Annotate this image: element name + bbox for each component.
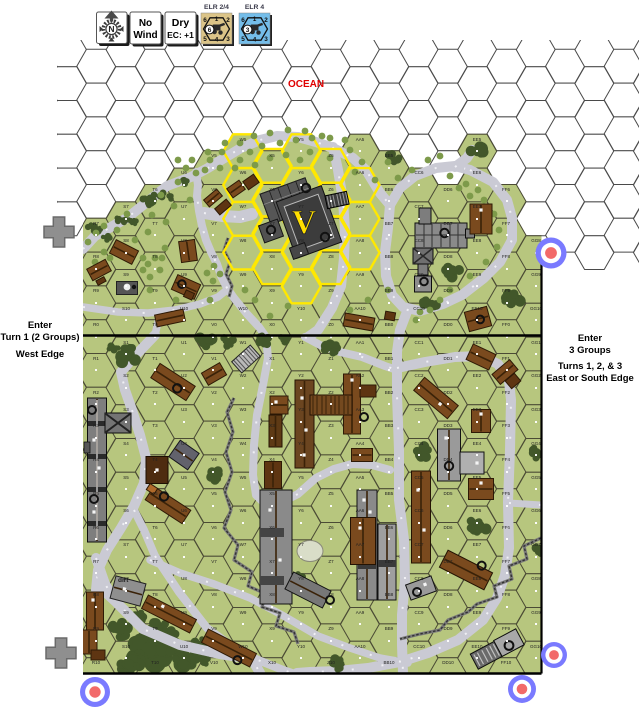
svg-text:U10: U10 [180, 644, 189, 649]
svg-text:CC7: CC7 [414, 204, 423, 209]
svg-text:R7: R7 [93, 221, 99, 226]
svg-text:S1: S1 [123, 340, 129, 345]
svg-text:OCEAN: OCEAN [288, 79, 324, 90]
svg-text:DD9: DD9 [443, 626, 452, 631]
svg-text:AA7: AA7 [356, 204, 365, 209]
svg-text:AA9: AA9 [356, 272, 365, 277]
svg-text:Z1: Z1 [328, 356, 334, 361]
svg-text:W5: W5 [240, 137, 247, 142]
svg-text:V5: V5 [211, 153, 217, 158]
svg-text:Y1: Y1 [298, 340, 304, 345]
svg-text:V1: V1 [211, 356, 217, 361]
svg-text:3: 3 [246, 27, 250, 34]
svg-text:DD6: DD6 [443, 187, 452, 192]
svg-text:BB8: BB8 [385, 254, 394, 259]
svg-text:Y5: Y5 [298, 475, 304, 480]
svg-text:S2: S2 [123, 373, 129, 378]
svg-text:V8: V8 [211, 592, 217, 597]
svg-text:AA10: AA10 [354, 644, 366, 649]
svg-text:EE6: EE6 [473, 508, 482, 513]
svg-text:T4: T4 [152, 457, 158, 462]
svg-text:EE10: EE10 [471, 644, 483, 649]
svg-text:X5: X5 [269, 491, 275, 496]
svg-text:EE2: EE2 [473, 373, 482, 378]
svg-text:FF7: FF7 [502, 221, 510, 226]
svg-text:U3: U3 [181, 407, 187, 412]
svg-text:GG6: GG6 [531, 508, 541, 513]
svg-text:W8: W8 [240, 576, 247, 581]
svg-text:V4: V4 [211, 457, 217, 462]
svg-text:DD7: DD7 [443, 559, 452, 564]
svg-text:T7: T7 [152, 221, 158, 226]
svg-text:T9: T9 [152, 626, 158, 631]
svg-text:R9: R9 [93, 288, 99, 293]
svg-text:W6: W6 [240, 508, 247, 513]
svg-text:West Edge: West Edge [16, 349, 64, 360]
svg-text:V6: V6 [211, 187, 217, 192]
svg-text:Z4: Z4 [328, 457, 334, 462]
svg-text:AA10: AA10 [354, 306, 366, 311]
svg-text:GG5: GG5 [531, 475, 541, 480]
svg-text:S5: S5 [123, 475, 129, 480]
svg-text:W3: W3 [240, 407, 247, 412]
svg-text:Enter: Enter [28, 320, 53, 331]
svg-text:R9: R9 [93, 626, 99, 631]
svg-text:U6: U6 [181, 508, 187, 513]
svg-text:X4: X4 [269, 457, 275, 462]
svg-text:R1: R1 [93, 356, 99, 361]
svg-text:FF9: FF9 [502, 626, 510, 631]
svg-text:W9: W9 [240, 610, 247, 615]
svg-text:FF4: FF4 [502, 457, 510, 462]
svg-text:S9: S9 [123, 610, 129, 615]
svg-text:V2: V2 [211, 390, 217, 395]
svg-text:BB9: BB9 [385, 288, 394, 293]
svg-text:S7: S7 [123, 542, 129, 547]
svg-text:T7: T7 [152, 559, 158, 564]
svg-text:Z8: Z8 [328, 592, 334, 597]
svg-text:Z6: Z6 [328, 525, 334, 530]
svg-text:X10: X10 [268, 660, 277, 665]
svg-text:X9: X9 [269, 288, 275, 293]
svg-text:EE5: EE5 [473, 137, 482, 142]
svg-text:R3: R3 [93, 423, 99, 428]
svg-text:Y4: Y4 [298, 441, 304, 446]
svg-text:5: 5 [241, 36, 245, 43]
svg-text:EE9: EE9 [473, 272, 482, 277]
svg-text:X8: X8 [269, 254, 275, 259]
svg-text:Y9: Y9 [298, 272, 304, 277]
svg-text:X2: X2 [269, 390, 275, 395]
svg-text:BB6: BB6 [385, 187, 394, 192]
svg-text:BB7: BB7 [385, 559, 394, 564]
svg-text:U7: U7 [181, 542, 187, 547]
svg-text:BB4: BB4 [385, 457, 394, 462]
svg-text:BB5: BB5 [385, 153, 394, 158]
svg-text:R2: R2 [93, 390, 99, 395]
svg-text:T1: T1 [152, 356, 158, 361]
svg-text:X8: X8 [269, 592, 275, 597]
svg-text:T5: T5 [152, 491, 158, 496]
svg-text:AA5: AA5 [356, 475, 365, 480]
svg-text:DD0: DD0 [443, 322, 452, 327]
svg-text:W8: W8 [240, 238, 247, 243]
svg-text:V9: V9 [211, 626, 217, 631]
svg-text:Y6: Y6 [298, 508, 304, 513]
svg-text:CC9: CC9 [414, 272, 423, 277]
svg-text:FF9: FF9 [502, 288, 510, 293]
svg-text:FF8: FF8 [502, 254, 510, 259]
svg-text:BB6: BB6 [385, 525, 394, 530]
svg-text:Y9: Y9 [298, 610, 304, 615]
svg-text:CC9: CC9 [414, 610, 423, 615]
svg-text:U1: U1 [181, 340, 187, 345]
svg-text:Z5: Z5 [328, 491, 334, 496]
svg-text:EE5: EE5 [473, 475, 482, 480]
svg-text:T9: T9 [152, 288, 158, 293]
svg-text:AA4: AA4 [356, 441, 365, 446]
svg-text:AA6: AA6 [356, 170, 365, 175]
svg-text:S3: S3 [123, 407, 129, 412]
svg-text:6: 6 [208, 27, 212, 34]
svg-text:BB10: BB10 [383, 660, 395, 665]
svg-text:FF10: FF10 [501, 660, 512, 665]
svg-text:Turn 1 (2 Groups): Turn 1 (2 Groups) [1, 332, 80, 343]
svg-text:3 Groups: 3 Groups [569, 345, 611, 356]
svg-text:CC8: CC8 [414, 576, 423, 581]
svg-text:X1: X1 [269, 356, 275, 361]
svg-text:Z7: Z7 [328, 559, 334, 564]
svg-text:BB8: BB8 [385, 592, 394, 597]
svg-text:5: 5 [203, 36, 207, 43]
svg-text:CC5: CC5 [414, 475, 423, 480]
svg-text:Z2: Z2 [328, 390, 334, 395]
svg-text:S10: S10 [122, 644, 131, 649]
svg-text:AA5: AA5 [356, 137, 365, 142]
svg-text:V8: V8 [211, 254, 217, 259]
svg-text:U5: U5 [181, 475, 187, 480]
svg-text:CC10: CC10 [413, 644, 425, 649]
svg-text:CC2: CC2 [414, 373, 423, 378]
svg-text:Z9: Z9 [328, 288, 334, 293]
svg-text:CC6: CC6 [414, 170, 423, 175]
svg-text:FF1: FF1 [502, 356, 510, 361]
svg-text:X0: X0 [269, 322, 275, 327]
svg-text:ELR 2/4: ELR 2/4 [204, 4, 229, 11]
svg-text:East or South Edge: East or South Edge [546, 373, 634, 384]
svg-text:T6: T6 [152, 525, 158, 530]
svg-text:DD8: DD8 [443, 592, 452, 597]
svg-text:W5: W5 [240, 475, 247, 480]
svg-text:Y5: Y5 [298, 137, 304, 142]
svg-text:T8: T8 [152, 254, 158, 259]
svg-text:R10: R10 [92, 660, 101, 665]
svg-text:Y6: Y6 [298, 170, 304, 175]
svg-text:BB9: BB9 [385, 626, 394, 631]
svg-text:FF8: FF8 [502, 592, 510, 597]
svg-text:GG7: GG7 [531, 542, 541, 547]
svg-text:GG9: GG9 [531, 610, 541, 615]
svg-text:Y8: Y8 [298, 238, 304, 243]
svg-text:R8: R8 [93, 592, 99, 597]
svg-text:BB5: BB5 [385, 491, 394, 496]
svg-text:X6: X6 [269, 525, 275, 530]
svg-text:DD9: DD9 [443, 288, 452, 293]
svg-text:Y7: Y7 [298, 542, 304, 547]
svg-text:2: 2 [264, 17, 268, 24]
svg-text:FF7: FF7 [502, 559, 510, 564]
svg-text:GG4: GG4 [531, 441, 541, 446]
svg-text:W2: W2 [240, 373, 247, 378]
svg-text:DD8: DD8 [443, 254, 452, 259]
svg-text:AA7: AA7 [356, 542, 365, 547]
svg-text:1: 1 [215, 16, 219, 23]
svg-text:W7: W7 [240, 204, 247, 209]
svg-text:FF2: FF2 [502, 390, 510, 395]
svg-text:ELR 4: ELR 4 [245, 4, 264, 11]
svg-text:EE1: EE1 [473, 340, 482, 345]
svg-text:Y10: Y10 [297, 306, 306, 311]
svg-text:U8: U8 [181, 576, 187, 581]
svg-text:N: N [108, 24, 114, 34]
svg-text:X7: X7 [269, 559, 275, 564]
svg-text:R0: R0 [93, 322, 99, 327]
svg-text:EE9: EE9 [473, 610, 482, 615]
svg-text:Dry: Dry [172, 17, 190, 29]
svg-text:X9: X9 [269, 626, 275, 631]
svg-text:EC: +1: EC: +1 [167, 30, 194, 40]
svg-text:V7: V7 [211, 559, 217, 564]
svg-text:DD4: DD4 [443, 457, 452, 462]
svg-text:AA1: AA1 [356, 340, 365, 345]
svg-text:BB1: BB1 [385, 356, 394, 361]
svg-text:W9: W9 [240, 272, 247, 277]
svg-text:Wind: Wind [133, 30, 157, 41]
svg-text:DD3: DD3 [443, 423, 452, 428]
svg-text:T8: T8 [152, 592, 158, 597]
svg-text:R7: R7 [93, 559, 99, 564]
svg-text:3: 3 [226, 36, 230, 43]
svg-text:AA8: AA8 [356, 238, 365, 243]
svg-text:U9: U9 [181, 610, 187, 615]
svg-text:AA3: AA3 [356, 407, 365, 412]
svg-text:S7: S7 [123, 204, 129, 209]
svg-text:2: 2 [226, 17, 230, 24]
svg-text:X3: X3 [269, 423, 275, 428]
svg-text:R4: R4 [93, 457, 99, 462]
svg-text:CC10: CC10 [413, 306, 425, 311]
svg-text:EE8: EE8 [473, 238, 482, 243]
svg-text:No: No [139, 18, 152, 29]
svg-text:DD6: DD6 [443, 525, 452, 530]
svg-text:S6: S6 [123, 508, 129, 513]
svg-text:AA2: AA2 [356, 373, 365, 378]
svg-text:T10: T10 [151, 660, 159, 665]
svg-text:CC8: CC8 [414, 238, 423, 243]
svg-text:AA9: AA9 [356, 610, 365, 615]
svg-text:W7: W7 [240, 542, 247, 547]
svg-text:FF5: FF5 [502, 491, 510, 496]
svg-text:Y2: Y2 [298, 373, 304, 378]
svg-text:T0: T0 [152, 322, 158, 327]
svg-text:EE4: EE4 [473, 441, 482, 446]
svg-text:GG3: GG3 [531, 407, 541, 412]
svg-text:4: 4 [253, 37, 257, 44]
svg-text:U2: U2 [181, 373, 187, 378]
svg-text:S8: S8 [123, 238, 129, 243]
svg-text:DD2: DD2 [443, 390, 452, 395]
svg-text:U10: U10 [180, 306, 189, 311]
svg-text:CC6: CC6 [414, 508, 423, 513]
svg-text:U7: U7 [181, 204, 187, 209]
svg-text:S10: S10 [122, 306, 131, 311]
svg-text:6: 6 [203, 17, 207, 24]
svg-text:DD5: DD5 [443, 491, 452, 496]
svg-text:DD7: DD7 [443, 221, 452, 226]
svg-text:Z10: Z10 [327, 660, 335, 665]
svg-text:Z5: Z5 [328, 153, 334, 158]
svg-text:Z0: Z0 [328, 322, 334, 327]
svg-text:GG2: GG2 [531, 373, 541, 378]
svg-text:AA8: AA8 [356, 576, 365, 581]
svg-text:U6: U6 [181, 170, 187, 175]
svg-text:S8: S8 [123, 576, 129, 581]
svg-text:Z7: Z7 [328, 221, 334, 226]
svg-text:CC3: CC3 [414, 407, 423, 412]
svg-text:EE10: EE10 [471, 306, 483, 311]
svg-text:AA6: AA6 [356, 508, 365, 513]
svg-text:EE8: EE8 [473, 576, 482, 581]
svg-text:BB3: BB3 [385, 423, 394, 428]
svg-text:GG8: GG8 [531, 238, 541, 243]
svg-text:EE6: EE6 [473, 170, 482, 175]
svg-text:BB0: BB0 [385, 322, 394, 327]
svg-text:V3: V3 [211, 423, 217, 428]
svg-text:W10: W10 [238, 306, 248, 311]
svg-text:V0: V0 [211, 322, 217, 327]
svg-text:V9: V9 [211, 288, 217, 293]
svg-text:T6: T6 [152, 187, 158, 192]
svg-text:W1: W1 [240, 340, 247, 345]
svg-text:V10: V10 [210, 660, 219, 665]
svg-text:Z3: Z3 [328, 423, 334, 428]
svg-text:EE7: EE7 [473, 204, 482, 209]
svg-text:BB2: BB2 [385, 390, 394, 395]
svg-text:CC7: CC7 [414, 542, 423, 547]
svg-text:U8: U8 [181, 238, 187, 243]
svg-text:4: 4 [215, 37, 219, 44]
svg-text:1: 1 [253, 16, 257, 23]
svg-text:GG1: GG1 [531, 340, 541, 345]
svg-text:DD10: DD10 [442, 660, 454, 665]
svg-text:X5: X5 [269, 153, 275, 158]
svg-text:R5: R5 [93, 491, 99, 496]
svg-text:FF6: FF6 [502, 525, 510, 530]
svg-text:V5: V5 [211, 491, 217, 496]
svg-text:V7: V7 [211, 221, 217, 226]
svg-text:S9: S9 [123, 272, 129, 277]
svg-text:Z9: Z9 [328, 626, 334, 631]
svg-text:U4: U4 [181, 441, 187, 446]
svg-text:Y7: Y7 [298, 204, 304, 209]
svg-text:CC1: CC1 [414, 340, 423, 345]
svg-text:DD1: DD1 [443, 356, 452, 361]
svg-text:T3: T3 [152, 423, 158, 428]
svg-text:Z6: Z6 [328, 187, 334, 192]
svg-text:W6: W6 [240, 170, 247, 175]
svg-text:S4: S4 [123, 441, 129, 446]
svg-text:X7: X7 [269, 221, 275, 226]
svg-text:T2: T2 [152, 390, 158, 395]
svg-text:BB7: BB7 [385, 221, 394, 226]
svg-text:Z8: Z8 [328, 254, 334, 259]
svg-text:FF3: FF3 [502, 423, 510, 428]
svg-text:Y10: Y10 [297, 644, 306, 649]
svg-text:Y3: Y3 [298, 407, 304, 412]
svg-text:Enter: Enter [578, 333, 603, 344]
svg-text:EE3: EE3 [473, 407, 482, 412]
svg-text:6: 6 [241, 17, 245, 24]
svg-text:X6: X6 [269, 187, 275, 192]
svg-text:3: 3 [264, 36, 268, 43]
svg-text:GG9: GG9 [531, 272, 541, 277]
svg-text:V6: V6 [211, 525, 217, 530]
svg-text:W4: W4 [240, 441, 247, 446]
svg-text:Y8: Y8 [298, 576, 304, 581]
svg-text:GG8: GG8 [531, 576, 541, 581]
svg-text:U9: U9 [181, 272, 187, 277]
svg-text:R8: R8 [93, 254, 99, 259]
svg-text:FF0: FF0 [502, 322, 510, 327]
svg-text:EE7: EE7 [473, 542, 482, 547]
svg-text:R6: R6 [93, 525, 99, 530]
svg-text:CC4: CC4 [414, 441, 423, 446]
svg-text:Turns 1, 2, & 3: Turns 1, 2, & 3 [558, 361, 622, 372]
svg-text:FF6: FF6 [502, 187, 510, 192]
svg-text:V: V [292, 204, 317, 241]
svg-text:W10: W10 [238, 644, 248, 649]
